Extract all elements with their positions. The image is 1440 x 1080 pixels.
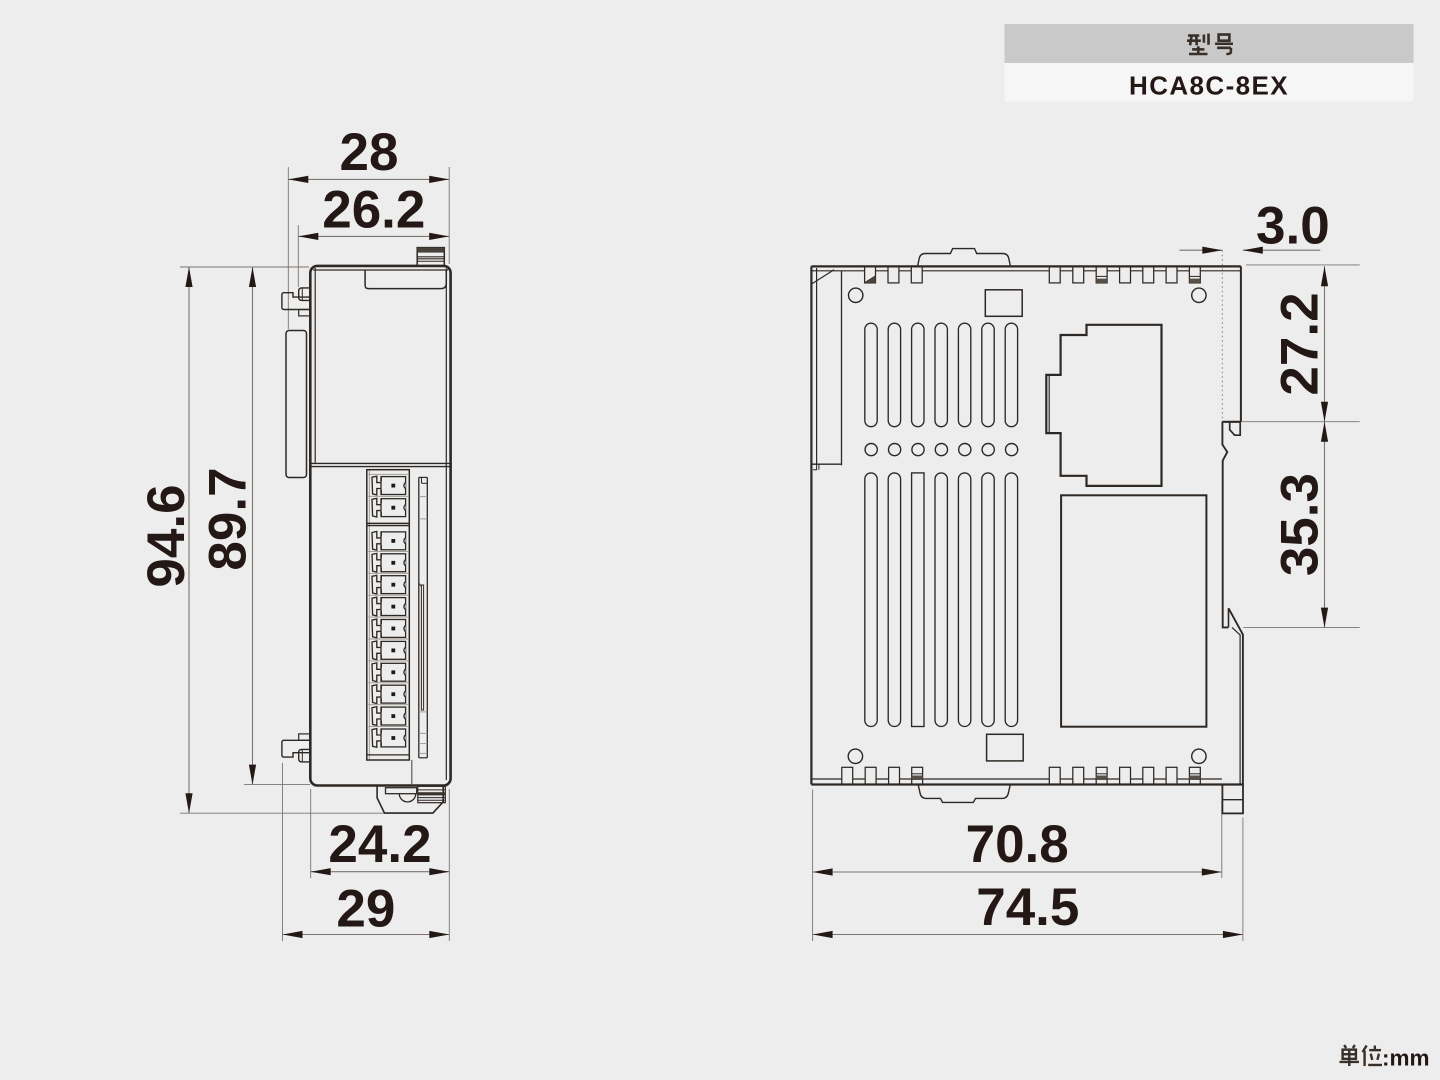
svg-text:28: 28 [340,123,399,182]
svg-text:29: 29 [336,879,395,938]
svg-text:35.3: 35.3 [1270,473,1329,576]
svg-text:89.7: 89.7 [199,467,258,570]
svg-text::mm: :mm [1382,1046,1430,1071]
svg-text:94.6: 94.6 [137,484,196,587]
svg-text:24.2: 24.2 [328,815,431,874]
svg-text:26.2: 26.2 [322,181,425,240]
svg-text:74.5: 74.5 [976,878,1079,937]
svg-text:70.8: 70.8 [966,815,1069,874]
svg-text:27.2: 27.2 [1270,292,1329,395]
svg-text:3.0: 3.0 [1256,197,1330,256]
svg-text:HCA8C-8EX: HCA8C-8EX [1129,71,1289,101]
